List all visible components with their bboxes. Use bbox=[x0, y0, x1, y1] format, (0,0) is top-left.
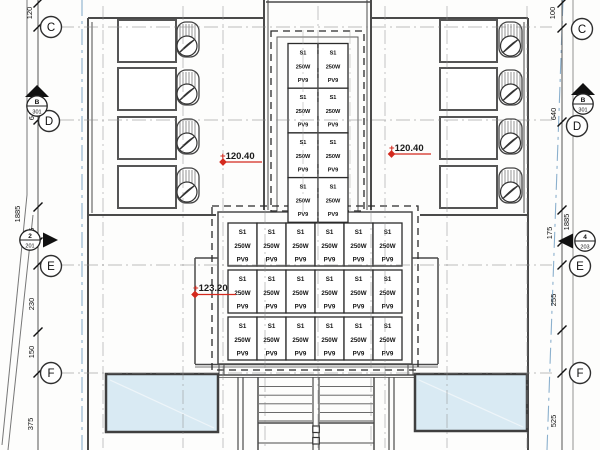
pv-panel-model: S1 bbox=[297, 323, 305, 330]
pv-panel-code: PV9 bbox=[295, 257, 307, 264]
elevation-text: +120.40 bbox=[220, 151, 255, 162]
elevation-text: +120.40 bbox=[389, 143, 424, 154]
pv-panel-power: 250W bbox=[379, 290, 395, 297]
pv-panel-power: 250W bbox=[326, 109, 341, 115]
pv-panel-model: S1 bbox=[268, 323, 276, 330]
pv-panel-code: PV9 bbox=[382, 257, 394, 264]
ac-units-left bbox=[118, 20, 199, 208]
floor-plan-canvas: S1250WPV9S1250WPV9S1250WPV9S1250WPV9S125… bbox=[0, 0, 600, 450]
pv-panel-code: PV9 bbox=[328, 212, 339, 218]
grid-bubble-label: E bbox=[47, 261, 55, 273]
dimension-label: 175 bbox=[545, 227, 554, 240]
pv-panel-power: 250W bbox=[326, 154, 341, 160]
pv-panel-model: S1 bbox=[330, 95, 337, 101]
section-marker: 4203 bbox=[558, 231, 596, 251]
pv-panel-model: S1 bbox=[239, 229, 247, 236]
pv-panel-code: PV9 bbox=[328, 123, 339, 129]
pv-panel-code: PV9 bbox=[237, 351, 249, 358]
ac-unit bbox=[440, 166, 522, 208]
elevation-label-right: +120.40 bbox=[388, 143, 431, 158]
section-marker: B301 bbox=[25, 85, 49, 116]
ac-unit bbox=[440, 20, 522, 62]
pv-panel-power: 250W bbox=[326, 199, 341, 205]
ac-unit bbox=[118, 166, 199, 208]
dimension-label: 120 bbox=[25, 7, 34, 20]
pv-panel-power: 250W bbox=[292, 337, 308, 344]
grid-bubble-label: C bbox=[47, 22, 55, 34]
elevation-text: +123.20 bbox=[193, 283, 228, 294]
glass-canopies bbox=[106, 374, 527, 432]
ac-unit-body bbox=[118, 166, 176, 208]
ac-unit-body bbox=[440, 20, 497, 62]
pv-panel-power: 250W bbox=[234, 290, 250, 297]
pv-panel-code: PV9 bbox=[266, 351, 278, 358]
pv-panel-model: S1 bbox=[355, 276, 363, 283]
section-marker-arrow-icon bbox=[558, 234, 573, 249]
pv-panel-power: 250W bbox=[263, 337, 279, 344]
dimension-label: 525 bbox=[549, 415, 558, 428]
pv-array-center: S1250WPV9S1250WPV9S1250WPV9S1250WPV9S125… bbox=[228, 223, 402, 360]
pv-panel-model: S1 bbox=[239, 276, 247, 283]
pv-panel-code: PV9 bbox=[295, 304, 307, 311]
section-marker-arrow-icon bbox=[43, 233, 58, 248]
ac-unit-body bbox=[118, 117, 176, 159]
pv-panel-power: 250W bbox=[234, 337, 250, 344]
dimension-label: 100 bbox=[548, 7, 557, 20]
pv-panel-model: S1 bbox=[297, 229, 305, 236]
section-marker-sheet: 203 bbox=[580, 245, 589, 251]
grid-bubble-label: C bbox=[578, 24, 586, 36]
section-marker-sheet: 201 bbox=[25, 244, 34, 250]
section-marker-ref: 4 bbox=[583, 234, 587, 241]
pv-panel-model: S1 bbox=[330, 140, 337, 146]
pv-panel-code: PV9 bbox=[237, 257, 249, 264]
pv-panel-power: 250W bbox=[263, 290, 279, 297]
pv-panel-code: PV9 bbox=[328, 167, 339, 173]
section-marker: B301 bbox=[571, 83, 595, 114]
section-marker-ref: B bbox=[581, 97, 586, 104]
pv-panel-model: S1 bbox=[330, 51, 337, 57]
dimension-label: 1885 bbox=[562, 214, 571, 231]
ac-unit-body bbox=[440, 117, 497, 159]
canopy-glass bbox=[106, 374, 218, 432]
pv-panel-code: PV9 bbox=[353, 304, 365, 311]
pv-panel-model: S1 bbox=[326, 276, 334, 283]
section-marker-sheet: 301 bbox=[578, 108, 587, 114]
pv-panel-model: S1 bbox=[330, 185, 337, 191]
dimension-label: 1885 bbox=[13, 206, 22, 223]
pv-panel-code: PV9 bbox=[382, 304, 394, 311]
canopy-glass bbox=[415, 374, 527, 431]
ac-unit bbox=[118, 20, 199, 62]
pv-panel-model: S1 bbox=[355, 323, 363, 330]
ac-unit-body bbox=[440, 166, 497, 208]
pv-panel-power: 250W bbox=[350, 243, 366, 250]
pv-panel-model: S1 bbox=[268, 276, 276, 283]
pv-panel-code: PV9 bbox=[295, 351, 307, 358]
pv-panel-model: S1 bbox=[326, 323, 334, 330]
elevation-label-left: +120.40 bbox=[219, 151, 262, 166]
pv-panel-power: 250W bbox=[234, 243, 250, 250]
pv-panel-model: S1 bbox=[268, 229, 276, 236]
pv-panel-power: 250W bbox=[292, 290, 308, 297]
pv-panel-code: PV9 bbox=[298, 212, 309, 218]
ac-unit bbox=[118, 117, 199, 159]
pv-panel-code: PV9 bbox=[266, 257, 278, 264]
pv-panel-power: 250W bbox=[350, 337, 366, 344]
section-marker-ref: 2 bbox=[28, 233, 32, 240]
grid-bubble-label: F bbox=[47, 368, 54, 380]
pv-panel-code: PV9 bbox=[353, 351, 365, 358]
ac-unit-body bbox=[118, 20, 176, 62]
boundary-line-blue bbox=[547, 0, 563, 450]
dimension-label: 255 bbox=[549, 294, 558, 307]
dimension-label: 230 bbox=[27, 298, 36, 311]
pv-panel-model: S1 bbox=[297, 276, 305, 283]
pv-panel-power: 250W bbox=[321, 290, 337, 297]
section-marker-ref: B bbox=[35, 99, 40, 106]
dimension-label: 375 bbox=[26, 418, 35, 431]
pv-panel-model: S1 bbox=[239, 323, 247, 330]
grid-bubble-label: D bbox=[573, 121, 581, 133]
grid-bubble-label: F bbox=[576, 368, 583, 380]
pv-panel-code: PV9 bbox=[237, 304, 249, 311]
pv-panel-power: 250W bbox=[321, 243, 337, 250]
pv-panel-model: S1 bbox=[355, 229, 363, 236]
pv-panel-model: S1 bbox=[326, 229, 334, 236]
pv-panel-power: 250W bbox=[350, 290, 366, 297]
dimension-label: 150 bbox=[27, 346, 36, 359]
ac-unit bbox=[440, 68, 522, 110]
pv-panel-code: PV9 bbox=[324, 351, 336, 358]
ac-unit bbox=[118, 68, 199, 110]
pv-panel-power: 250W bbox=[379, 243, 395, 250]
pv-panel-power: 250W bbox=[292, 243, 308, 250]
pv-panel-power: 250W bbox=[379, 337, 395, 344]
pv-panel-power: 250W bbox=[263, 243, 279, 250]
pv-panel-power: 250W bbox=[321, 337, 337, 344]
dimension-label: 640 bbox=[549, 108, 558, 121]
pv-panel-code: PV9 bbox=[266, 304, 278, 311]
pv-panel-code: PV9 bbox=[324, 257, 336, 264]
floor-plan-drawing: S1250WPV9S1250WPV9S1250WPV9S1250WPV9S125… bbox=[0, 0, 600, 450]
section-marker: 2201 bbox=[20, 230, 59, 250]
grid-bubble-label: E bbox=[576, 261, 584, 273]
pv-panel-code: PV9 bbox=[328, 78, 339, 84]
grid-bubble-label: D bbox=[45, 116, 53, 128]
ac-unit bbox=[440, 117, 522, 159]
pv-panel-code: PV9 bbox=[324, 304, 336, 311]
ac-unit-body bbox=[440, 68, 497, 110]
ac-units-right bbox=[440, 20, 522, 208]
pv-panel-power: 250W bbox=[326, 65, 341, 71]
ac-unit-body bbox=[118, 68, 176, 110]
pv-panel-code: PV9 bbox=[382, 351, 394, 358]
section-marker-sheet: 301 bbox=[32, 110, 41, 116]
pv-panel-code: PV9 bbox=[353, 257, 365, 264]
